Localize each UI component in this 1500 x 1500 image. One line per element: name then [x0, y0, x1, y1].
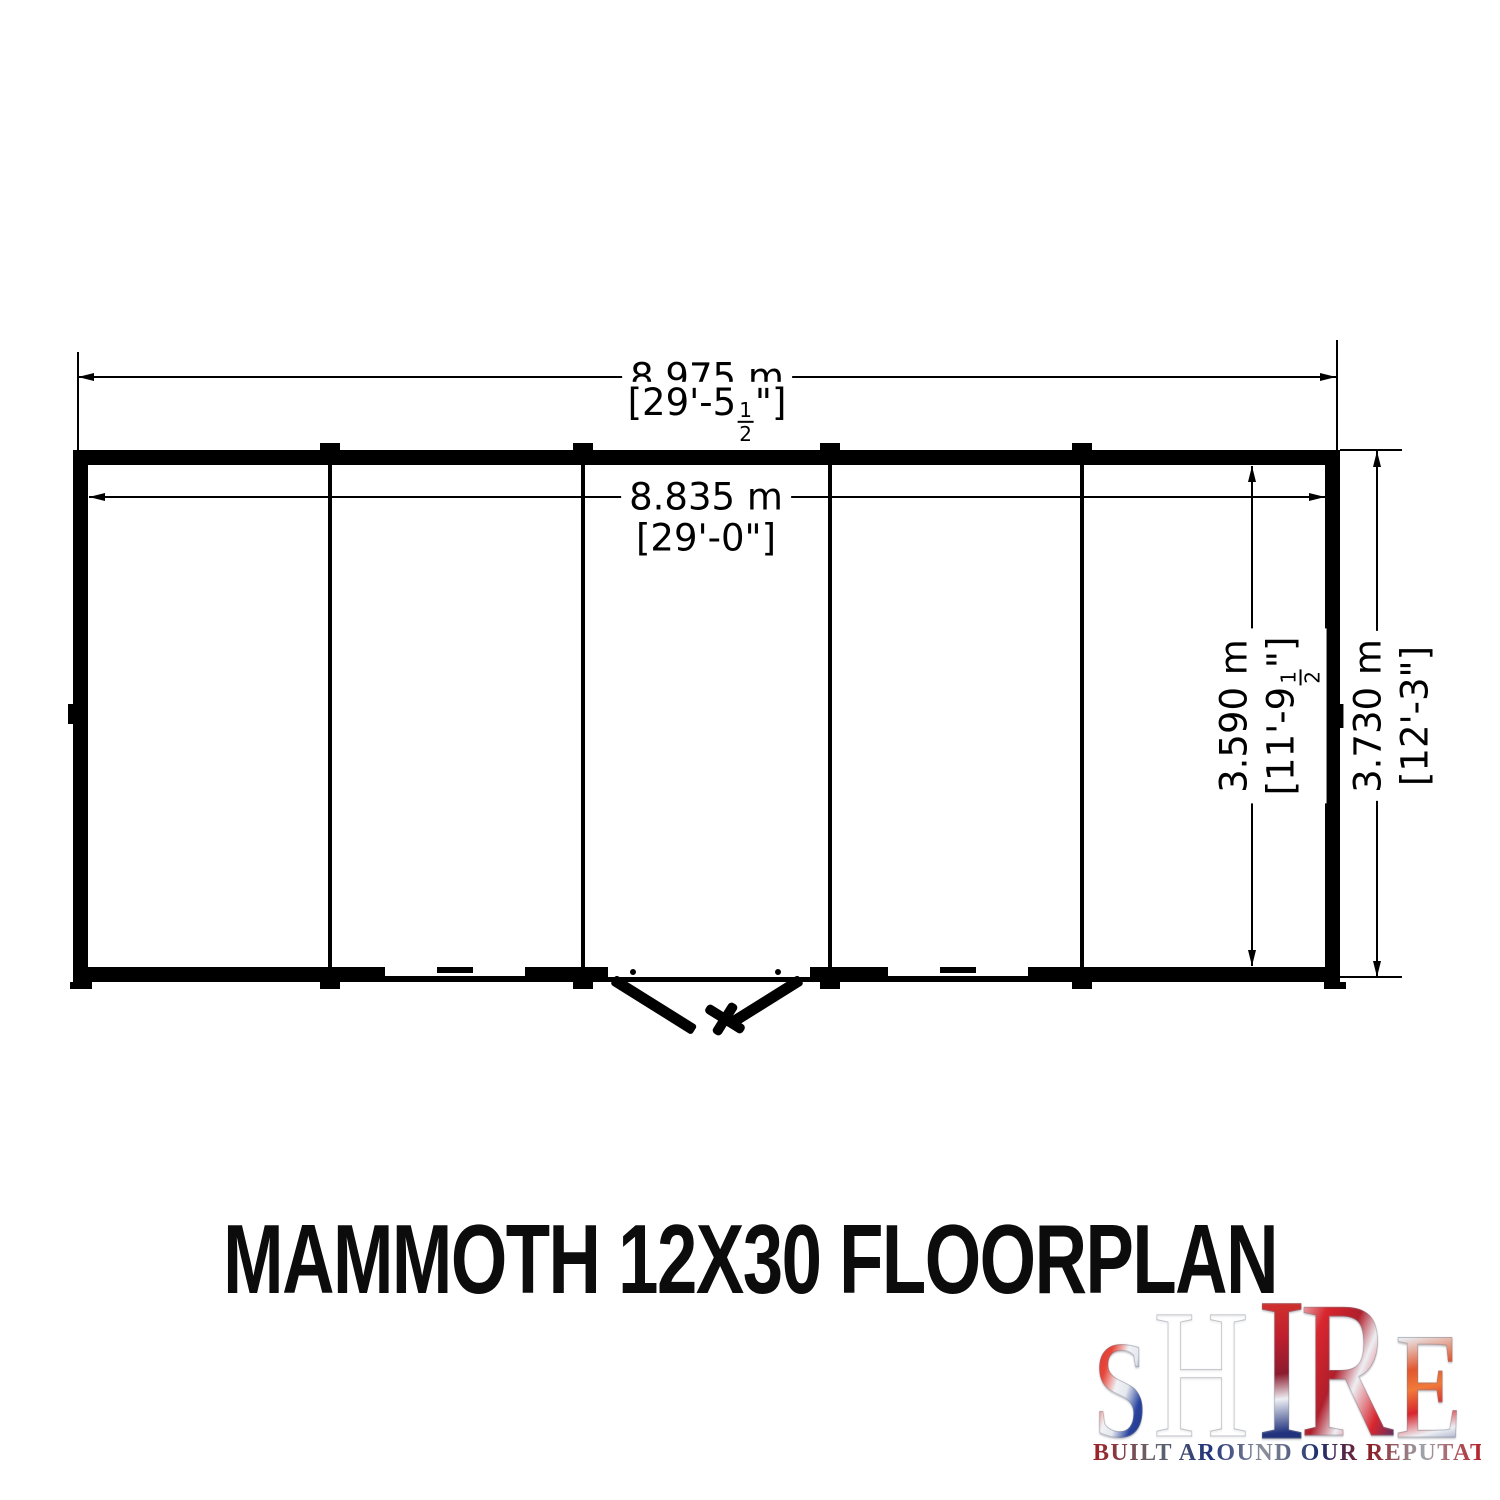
inner-depth-metric-label: 3.590 m [1214, 639, 1257, 793]
door-hinge-dot [775, 969, 781, 975]
dimension-arrow [1248, 466, 1256, 482]
frame-tab [820, 443, 840, 450]
logo-letter-r: R [1300, 1273, 1394, 1468]
inner-width-imperial-label: [29'-0"] [628, 518, 784, 559]
frame-tab [320, 982, 340, 989]
dimension-arrow [1309, 493, 1325, 501]
wall-joint [68, 704, 74, 724]
door-leaf-left [610, 975, 697, 1035]
outer-depth-imperial-label: [12'-3"] [1394, 646, 1437, 786]
door-hinge-dot [630, 969, 636, 975]
frame-tab [70, 982, 92, 989]
frame-tab [573, 982, 593, 989]
outer-width-imperial-label: [29'-512"] [620, 382, 795, 446]
extension-line [77, 352, 79, 450]
frame-tab [1072, 443, 1092, 450]
partition-line [328, 465, 332, 967]
fraction: 12 [737, 400, 754, 444]
inner-width-metric-label: 8.835 m [621, 477, 791, 518]
frame-tab [820, 982, 840, 989]
partition-line [1080, 465, 1084, 967]
window-sill [940, 967, 976, 973]
imperial-text: [29'-5 [628, 381, 737, 424]
imperial-text: "] [755, 381, 786, 424]
outer-depth-label: 3.730 m [12'-3"] [1343, 631, 1440, 801]
dimension-arrow [89, 493, 105, 501]
dimension-arrow [78, 373, 94, 381]
dimension-arrow [1248, 950, 1256, 966]
door-leaf-right [730, 975, 804, 1027]
extension-line [1340, 976, 1402, 978]
dimension-arrow [1373, 451, 1381, 467]
logo-tagline: BUILT AROUND OUR REPUTATION [1093, 1440, 1481, 1467]
floorplan-title: MAMMOTH 12X30 FLOORPLAN [223, 1203, 1277, 1316]
inner-depth-imperial-label: [11'-912"] [1260, 637, 1322, 796]
fraction: 12 [1278, 669, 1322, 686]
floorplan-page: 8.975 m [29'-512"] 8.835 m [29'-0"] 3.59… [0, 0, 1500, 1500]
window-sill [437, 967, 473, 973]
frame-tab [573, 443, 593, 450]
extension-line [1340, 449, 1402, 451]
dimension-arrow [1320, 373, 1336, 381]
inner-depth-label: 3.590 m [11'-912"] [1210, 629, 1327, 804]
frame-tab [1072, 982, 1092, 989]
partition-line [581, 465, 585, 967]
dimension-arrow [1373, 961, 1381, 977]
partition-line [828, 465, 832, 967]
extension-line [1336, 340, 1338, 450]
outer-depth-metric-label: 3.730 m [1347, 639, 1390, 793]
frame-tab [1324, 982, 1346, 989]
logo-letter-s: S [1093, 1321, 1148, 1459]
frame-tab [320, 443, 340, 450]
